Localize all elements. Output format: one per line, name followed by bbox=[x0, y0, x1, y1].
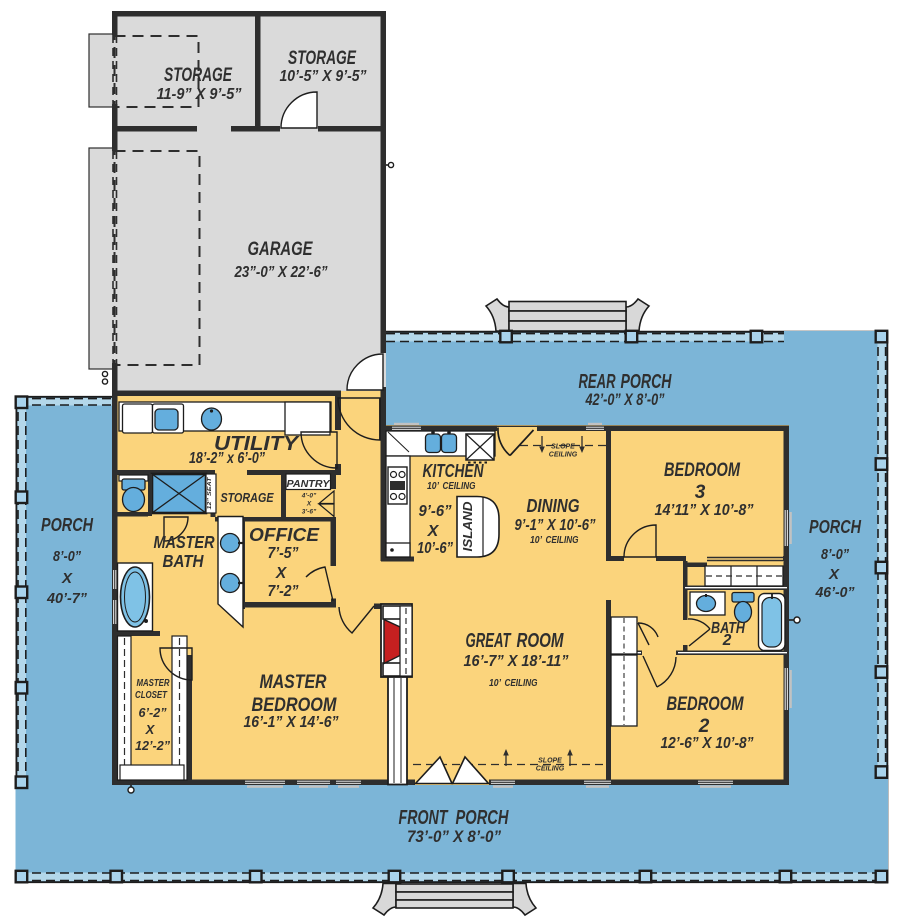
svg-text:8’-0”: 8’-0” bbox=[53, 548, 81, 565]
svg-text:7’-2”: 7’-2” bbox=[268, 583, 299, 600]
svg-text:10’: 10’ bbox=[530, 534, 543, 546]
svg-text:OFFICE: OFFICE bbox=[249, 525, 320, 545]
svg-text:CLOSET: CLOSET bbox=[135, 690, 168, 701]
svg-text:8’-0”: 8’-0” bbox=[821, 546, 849, 563]
svg-text:X: X bbox=[275, 565, 288, 582]
svg-text:STORAGE: STORAGE bbox=[288, 47, 357, 69]
svg-text:ISLAND: ISLAND bbox=[460, 501, 475, 552]
svg-text:SLOPE: SLOPE bbox=[538, 758, 562, 765]
svg-text:CEILING: CEILING bbox=[549, 452, 578, 459]
svg-text:STORAGE: STORAGE bbox=[221, 490, 274, 505]
svg-text:SLOPE: SLOPE bbox=[551, 444, 575, 451]
svg-text:KITCHEN: KITCHEN bbox=[423, 461, 485, 481]
svg-text:STORAGE: STORAGE bbox=[164, 64, 233, 86]
svg-text:PORCH: PORCH bbox=[41, 515, 94, 535]
svg-text:3’-6”: 3’-6” bbox=[302, 509, 317, 516]
svg-text:11-9” X 9’-5”: 11-9” X 9’-5” bbox=[157, 86, 242, 103]
svg-text:10’: 10’ bbox=[427, 480, 440, 492]
svg-text:CEILING: CEILING bbox=[505, 677, 538, 689]
svg-text:6’-2”: 6’-2” bbox=[139, 705, 167, 720]
svg-text:PORCH: PORCH bbox=[809, 517, 862, 537]
svg-text:GREAT: GREAT bbox=[466, 630, 512, 652]
svg-text:GARAGE: GARAGE bbox=[248, 238, 314, 260]
svg-text:PORCH: PORCH bbox=[456, 807, 509, 829]
svg-text:73’-0” X 8’-0”: 73’-0” X 8’-0” bbox=[407, 827, 501, 846]
svg-text:BEDROOM: BEDROOM bbox=[664, 460, 741, 481]
svg-text:X: X bbox=[306, 501, 312, 508]
svg-text:10’-6”: 10’-6” bbox=[417, 540, 453, 557]
svg-text:40’-7”: 40’-7” bbox=[46, 590, 87, 607]
svg-text:16’-1” X 14’-6”: 16’-1” X 14’-6” bbox=[244, 714, 339, 731]
svg-text:X: X bbox=[828, 566, 840, 583]
svg-text:14’11” X 10’-8”: 14’11” X 10’-8” bbox=[655, 502, 754, 519]
svg-text:BATH: BATH bbox=[163, 551, 204, 571]
svg-text:X: X bbox=[145, 722, 156, 737]
svg-text:BEDROOM: BEDROOM bbox=[667, 694, 745, 715]
svg-text:12’-6” X 10’-8”: 12’-6” X 10’-8” bbox=[661, 735, 754, 752]
svg-text:ROOM: ROOM bbox=[517, 630, 565, 652]
svg-text:9’-1” X 10’-6”: 9’-1” X 10’-6” bbox=[515, 517, 596, 534]
svg-text:MASTER: MASTER bbox=[137, 678, 171, 689]
svg-text:9’-6”: 9’-6” bbox=[419, 503, 452, 520]
svg-text:2: 2 bbox=[698, 716, 710, 737]
svg-text:PANTRY: PANTRY bbox=[287, 478, 331, 490]
svg-text:42’-0” X 8’-0”: 42’-0” X 8’-0” bbox=[585, 390, 665, 409]
svg-text:MASTER: MASTER bbox=[154, 532, 215, 552]
svg-text:CEILING: CEILING bbox=[536, 766, 565, 773]
svg-text:23”-0” X 22’-6”: 23”-0” X 22’-6” bbox=[234, 264, 328, 281]
svg-text:X: X bbox=[61, 570, 73, 587]
svg-text:4’-0”: 4’-0” bbox=[301, 493, 317, 500]
svg-text:3: 3 bbox=[695, 482, 706, 503]
svg-text:7’-5”: 7’-5” bbox=[268, 545, 299, 562]
svg-text:2: 2 bbox=[722, 632, 732, 649]
svg-text:CEILING: CEILING bbox=[443, 480, 476, 492]
svg-text:BEDROOM: BEDROOM bbox=[252, 695, 338, 716]
svg-text:12’-2”: 12’-2” bbox=[135, 738, 170, 753]
svg-text:CEILING: CEILING bbox=[546, 534, 579, 546]
svg-text:FRONT: FRONT bbox=[399, 807, 449, 829]
svg-text:12” SEAT: 12” SEAT bbox=[207, 477, 213, 510]
svg-text:DINING: DINING bbox=[527, 496, 580, 516]
svg-text:10’: 10’ bbox=[489, 677, 502, 689]
svg-text:X: X bbox=[427, 523, 440, 540]
svg-text:46’-0”: 46’-0” bbox=[815, 584, 855, 601]
svg-text:10’-5” X 9’-5”: 10’-5” X 9’-5” bbox=[280, 68, 367, 85]
svg-text:18’-2” x 6’-0”: 18’-2” x 6’-0” bbox=[189, 450, 265, 467]
svg-text:MASTER: MASTER bbox=[260, 672, 327, 693]
svg-text:16’-7” X 18’-11”: 16’-7” X 18’-11” bbox=[464, 653, 569, 670]
